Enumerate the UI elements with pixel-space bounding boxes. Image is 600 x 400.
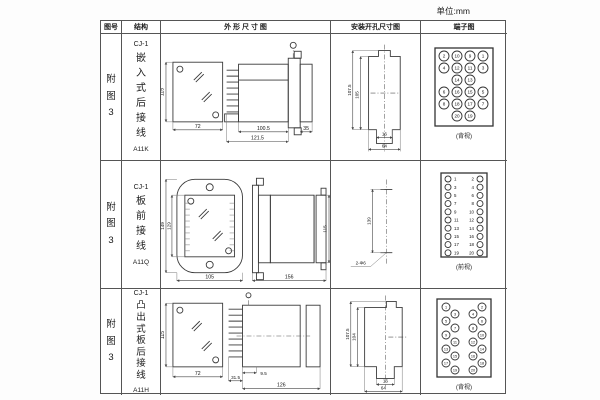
svg-text:12: 12 xyxy=(454,65,460,70)
svg-text:4: 4 xyxy=(472,184,475,189)
svg-text:11: 11 xyxy=(454,217,459,222)
dim-label: 9.5 xyxy=(260,371,267,376)
svg-text:18: 18 xyxy=(480,361,484,365)
dim-label: 64 xyxy=(382,143,388,148)
dim-label: 121.5 xyxy=(251,135,264,141)
dim-label: 105 xyxy=(205,274,214,280)
dim-label: 100.5 xyxy=(257,125,270,131)
svg-text:3: 3 xyxy=(454,312,456,316)
terminal-cell-a11q: 1234567891011121314151617181920 (前视) xyxy=(421,161,507,289)
svg-text:7: 7 xyxy=(482,101,485,106)
svg-text:9: 9 xyxy=(445,333,447,337)
svg-text:2: 2 xyxy=(472,176,475,181)
svg-text:1: 1 xyxy=(454,176,457,181)
terminal-view-caption: (背视) xyxy=(456,132,472,140)
svg-text:13: 13 xyxy=(467,77,473,82)
svg-text:17: 17 xyxy=(467,101,473,106)
dim-label: 115 xyxy=(161,87,165,95)
svg-text:19: 19 xyxy=(467,113,473,118)
structure-cell-a11q: CJ-1 板前接线 A11Q xyxy=(122,161,161,289)
svg-text:13: 13 xyxy=(454,225,459,230)
dim-label: 129 xyxy=(166,221,171,229)
svg-text:17: 17 xyxy=(444,361,448,365)
dim-label: 156 xyxy=(285,274,294,280)
svg-text:2: 2 xyxy=(481,305,483,309)
svg-text:4: 4 xyxy=(472,312,474,316)
outline-cell-a11q: 149 129 105 156 115 xyxy=(161,161,331,289)
structure-code: A11H xyxy=(133,387,149,394)
svg-text:5: 5 xyxy=(445,319,447,323)
svg-text:13: 13 xyxy=(444,347,448,351)
structure-type: 板前接线 xyxy=(136,194,146,254)
hole-callout: 2-Φ6 xyxy=(356,260,367,265)
structure-model: CJ-1 xyxy=(134,41,149,48)
terminal-grid: 2109141211314136161558181772019 xyxy=(439,51,488,121)
dim-label: 64 xyxy=(381,385,387,390)
svg-text:3: 3 xyxy=(454,184,457,189)
svg-text:9: 9 xyxy=(454,209,457,214)
dim-label: 126 xyxy=(277,383,286,389)
svg-text:4: 4 xyxy=(443,65,446,70)
svg-text:11: 11 xyxy=(468,65,473,70)
dim-label: 107.5 xyxy=(345,328,350,340)
fig-no-cell: 附图3 xyxy=(101,34,122,161)
svg-text:12: 12 xyxy=(471,340,475,344)
svg-text:10: 10 xyxy=(480,333,484,337)
mounting-hole-diagram-a11q: 139 2-Φ6 xyxy=(331,161,420,289)
install-cell-a11k: 107.5 105 16 64 xyxy=(331,34,421,161)
fig-no-cell: 附图3 xyxy=(101,161,122,289)
dim-label: 115 xyxy=(323,224,328,232)
dim-label: 35 xyxy=(303,125,309,131)
dim-label: 104 xyxy=(352,333,357,341)
col-header-outline: 外 形 尺 寸 图 xyxy=(161,21,331,34)
structure-type: 嵌入式后接线 xyxy=(136,51,146,141)
svg-text:11: 11 xyxy=(453,340,457,344)
col-header-fig-no: 图号 xyxy=(101,21,122,34)
svg-text:5: 5 xyxy=(482,89,485,94)
terminal-view-caption: (前视) xyxy=(456,263,472,271)
outline-diagram-a11h: 115 72 31.5 9.5 126 xyxy=(161,289,330,395)
svg-text:9: 9 xyxy=(469,53,472,58)
dim-label: 149 xyxy=(161,221,165,229)
svg-text:6: 6 xyxy=(481,319,483,323)
dim-label: 72 xyxy=(195,371,201,377)
structure-cell-a11k: CJ-1 嵌入式后接线 A11K xyxy=(122,34,161,161)
fig-no-label: 附图3 xyxy=(106,317,116,367)
outline-diagram-a11k: 115 72 100.5 121.5 35 xyxy=(161,34,330,161)
dimension-table: 图号 结构 外 形 尺 寸 图 安装开孔尺寸图 端子图 附图3 CJ-1 嵌入式… xyxy=(100,20,506,394)
dim-label: 31.5 xyxy=(231,375,240,380)
terminal-cell-a11h: 1357911131517192468101214161820 (背视) xyxy=(421,289,507,395)
structure-code: A11K xyxy=(133,146,148,153)
terminal-cell-a11k: 2109141211314136161558181772019 (背视) xyxy=(421,34,507,161)
dim-label: 107.5 xyxy=(347,83,352,95)
terminal-diagram-a11h: 1357911131517192468101214161820 (背视) xyxy=(421,289,507,395)
structure-code: A11Q xyxy=(133,259,149,266)
svg-text:7: 7 xyxy=(454,326,456,330)
svg-text:2: 2 xyxy=(443,53,446,58)
dim-label: 115 xyxy=(161,331,166,339)
col-header-terminals: 端子图 xyxy=(421,21,507,34)
terminal-view-caption: (背视) xyxy=(456,383,472,391)
svg-text:18: 18 xyxy=(454,101,460,106)
fig-no-cell: 附图3 xyxy=(101,289,122,395)
fig-no-label: 附图3 xyxy=(106,200,116,250)
svg-text:18: 18 xyxy=(469,242,474,247)
terminal-diagram-a11k: 2109141211314136161558181772019 (背视) xyxy=(421,34,507,161)
install-cell-a11q: 139 2-Φ6 xyxy=(331,161,421,289)
svg-text:14: 14 xyxy=(469,225,474,230)
svg-text:19: 19 xyxy=(454,250,459,255)
svg-text:10: 10 xyxy=(454,53,460,58)
svg-text:14: 14 xyxy=(480,347,484,351)
svg-text:3: 3 xyxy=(482,65,485,70)
svg-text:8: 8 xyxy=(443,101,446,106)
structure-model: CJ-1 xyxy=(134,290,149,297)
structure-model: CJ-1 xyxy=(134,184,149,191)
svg-text:10: 10 xyxy=(469,209,474,214)
mounting-hole-diagram-a11k: 107.5 105 16 64 xyxy=(331,34,420,161)
unit-label: 单位:mm xyxy=(360,5,470,17)
svg-text:16: 16 xyxy=(469,233,474,238)
svg-text:17: 17 xyxy=(454,242,459,247)
terminal-grid: 1234567891011121314151617181920 xyxy=(445,176,483,256)
dim-label: 72 xyxy=(195,123,201,129)
svg-text:5: 5 xyxy=(454,192,457,197)
svg-text:16: 16 xyxy=(454,89,460,94)
col-header-structure: 结构 xyxy=(122,21,161,34)
structure-cell-a11h: CJ-1 凸出式板后接线 A11H xyxy=(122,289,161,395)
outline-diagram-a11q: 149 129 105 156 115 xyxy=(161,161,330,289)
col-header-mounting-holes: 安装开孔尺寸图 xyxy=(331,21,421,34)
svg-text:6: 6 xyxy=(472,192,475,197)
svg-text:20: 20 xyxy=(454,113,460,118)
mounting-hole-diagram-a11h: 107.5 104 16 64 xyxy=(331,289,420,395)
svg-text:12: 12 xyxy=(469,217,474,222)
dim-label: 139 xyxy=(367,216,372,224)
svg-text:14: 14 xyxy=(454,77,460,82)
svg-text:19: 19 xyxy=(453,368,457,372)
svg-text:1: 1 xyxy=(482,53,485,58)
fig-no-label: 附图3 xyxy=(106,72,116,122)
svg-text:8: 8 xyxy=(472,201,475,206)
dim-label: 16 xyxy=(382,131,388,136)
install-cell-a11h: 107.5 104 16 64 xyxy=(331,289,421,395)
svg-text:15: 15 xyxy=(453,354,457,358)
outline-cell-a11h: 115 72 31.5 9.5 126 xyxy=(161,289,331,395)
terminal-grid: 1357911131517192468101214161820 xyxy=(442,303,486,374)
terminal-diagram-a11q: 1234567891011121314151617181920 (前视) xyxy=(421,161,507,289)
svg-text:6: 6 xyxy=(443,89,446,94)
svg-text:16: 16 xyxy=(471,354,475,358)
svg-text:1: 1 xyxy=(445,305,447,309)
svg-text:7: 7 xyxy=(454,201,457,206)
svg-text:20: 20 xyxy=(469,250,474,255)
svg-text:15: 15 xyxy=(454,233,459,238)
dim-label: 16 xyxy=(383,379,389,384)
svg-text:15: 15 xyxy=(467,89,473,94)
svg-text:8: 8 xyxy=(472,326,474,330)
outline-cell-a11k: 115 72 100.5 121.5 35 xyxy=(161,34,331,161)
dim-label: 105 xyxy=(355,90,360,98)
structure-type: 凸出式板后接线 xyxy=(136,300,146,381)
svg-text:20: 20 xyxy=(471,368,475,372)
